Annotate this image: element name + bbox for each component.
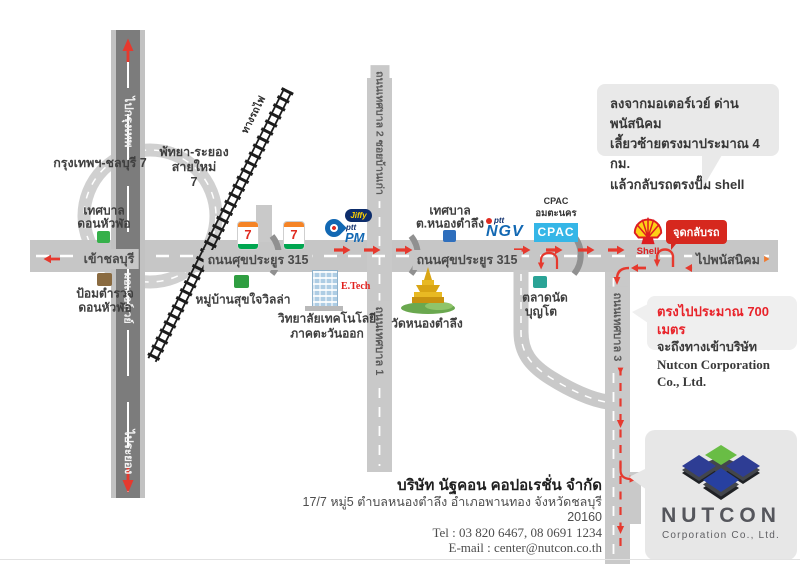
seven-eleven-logo: 7: [283, 221, 305, 250]
directions-line-1: ลงจากมอเตอร์เวย์ ด่านพนัสนิคม: [610, 94, 766, 134]
company-address: 17/7 หมู่5 ตำบลหนองตำลึง อำเภอพานทอง จัง…: [300, 495, 602, 525]
company-tel: Tel : 03 820 6467, 08 0691 1234: [300, 525, 602, 540]
to-chonburi-label: เข้าชลบุรี: [80, 249, 139, 269]
market-label-2: บุญโต: [525, 303, 557, 322]
u-turn-badge-tail: [671, 238, 681, 250]
sukjai-villa-marker: [234, 275, 249, 288]
tessaban-nong-tamlueng-marker: [443, 230, 456, 242]
nutcon-wordmark-sub: Corporation Co., Ltd.: [645, 530, 797, 541]
motorway-to-bangkok-label: ไปกรุงเทพ: [119, 97, 137, 148]
distance-line-3: Nutcon Corporation Co., Ltd.: [657, 356, 787, 390]
cpac-plant: CPAC อมตะนคร CPAC: [534, 196, 578, 242]
directions-bubble-tail: [702, 155, 722, 189]
map-canvas: กรุงเทพฯ-ชลบุรี 7 พัทยา-ระยอง สายใหม่ 7 …: [0, 0, 800, 566]
cpac-title: CPAC: [534, 196, 578, 206]
nutcon-logo-bubble: NUTCON Corporation Co., Ltd.: [645, 430, 797, 560]
college-label-2: ภาคตะวันออก: [290, 325, 364, 344]
cpac-logo: CPAC: [534, 223, 578, 242]
company-name: บริษัท นัฐคอน คอปอเรชั่น จำกัด: [300, 477, 602, 495]
ptt-pm-text: PM: [345, 230, 365, 245]
shell-label: Shell: [637, 246, 660, 257]
seven-eleven-7: 7: [284, 227, 304, 242]
etech-label: E.Tech: [341, 281, 370, 292]
temple-label: วัดหนองตำลึง: [391, 315, 462, 334]
ptt-pm-station-logo: Jiffy ptt PM: [324, 209, 374, 247]
tessaban-3-label: ถนนเทศบาล 3: [608, 287, 628, 368]
company-info: บริษัท นัฐคอน คอปอเรชั่น จำกัด 17/7 หมู่…: [300, 477, 602, 555]
company-email: E-mail : center@nutcon.co.th: [300, 540, 602, 555]
police-box-label-2: ดอนหัวฬ่อ: [78, 299, 131, 318]
directions-line-3: แล้วกลับรถตรงปั๊ม shell: [610, 175, 766, 195]
seven-eleven-7: 7: [238, 227, 258, 242]
directions-line-2: เลี้ยวซ้ายตรงมาประมาณ 4 กม.: [610, 134, 766, 174]
jiffy-logo: Jiffy: [345, 209, 372, 222]
motorway-to-rayong-label: ไประยอง: [119, 430, 137, 475]
distance-bubble: ตรงไปประมาณ 700 เมตร จะถึงทางเข้าบริษัท …: [647, 296, 797, 350]
nutcon-wordmark: NUTCON: [645, 504, 797, 528]
shell-logo: [630, 212, 666, 246]
main-road-name-west: ถนนศุขประยูร 315: [204, 250, 313, 270]
interchange-east-label-2: สายใหม่: [172, 157, 217, 177]
distance-line-1: ตรงไปประมาณ 700 เมตร: [657, 303, 787, 339]
interchange-east-label-3: 7: [191, 175, 198, 189]
interchange-west-label: กรุงเทพฯ-ชลบุรี 7: [53, 153, 147, 173]
ngv-text: NGV: [486, 223, 524, 241]
temple-icon: [399, 266, 457, 314]
market-marker: [533, 276, 547, 288]
distance-bubble-tail: [632, 304, 648, 323]
tessaban-2-label: ถนนเทศบาล 2 ซอยบ้านเก่า: [371, 65, 390, 201]
etech-building-icon: [312, 270, 338, 309]
seven-eleven-stripe-bottom: [238, 244, 258, 249]
nutcon-diamonds-icon: [669, 440, 773, 502]
directions-bubble: ลงจากมอเตอร์เวย์ ด่านพนัสนิคม เลี้ยวซ้าย…: [597, 84, 779, 156]
cpac-area: อมตะนคร: [534, 206, 578, 221]
seven-eleven-logo: 7: [237, 221, 259, 250]
seven-eleven-stripe-bottom: [284, 244, 304, 249]
to-phanat-nikhom-label: ไปพนัสนิคม: [692, 250, 764, 270]
ptt-drop-icon: [321, 215, 346, 240]
sukjai-villa-label: หมู่บ้านสุขใจวิลล่า: [196, 291, 291, 310]
nutcon-bubble-tail: [629, 468, 647, 490]
ptt-ngv-logo: ptt NGV: [486, 216, 538, 246]
tessaban-don-hua-lo-marker: [97, 231, 110, 243]
page-bottom-edge: [0, 559, 800, 560]
distance-line-2: จะถึงทางเข้าบริษัท: [657, 339, 787, 356]
